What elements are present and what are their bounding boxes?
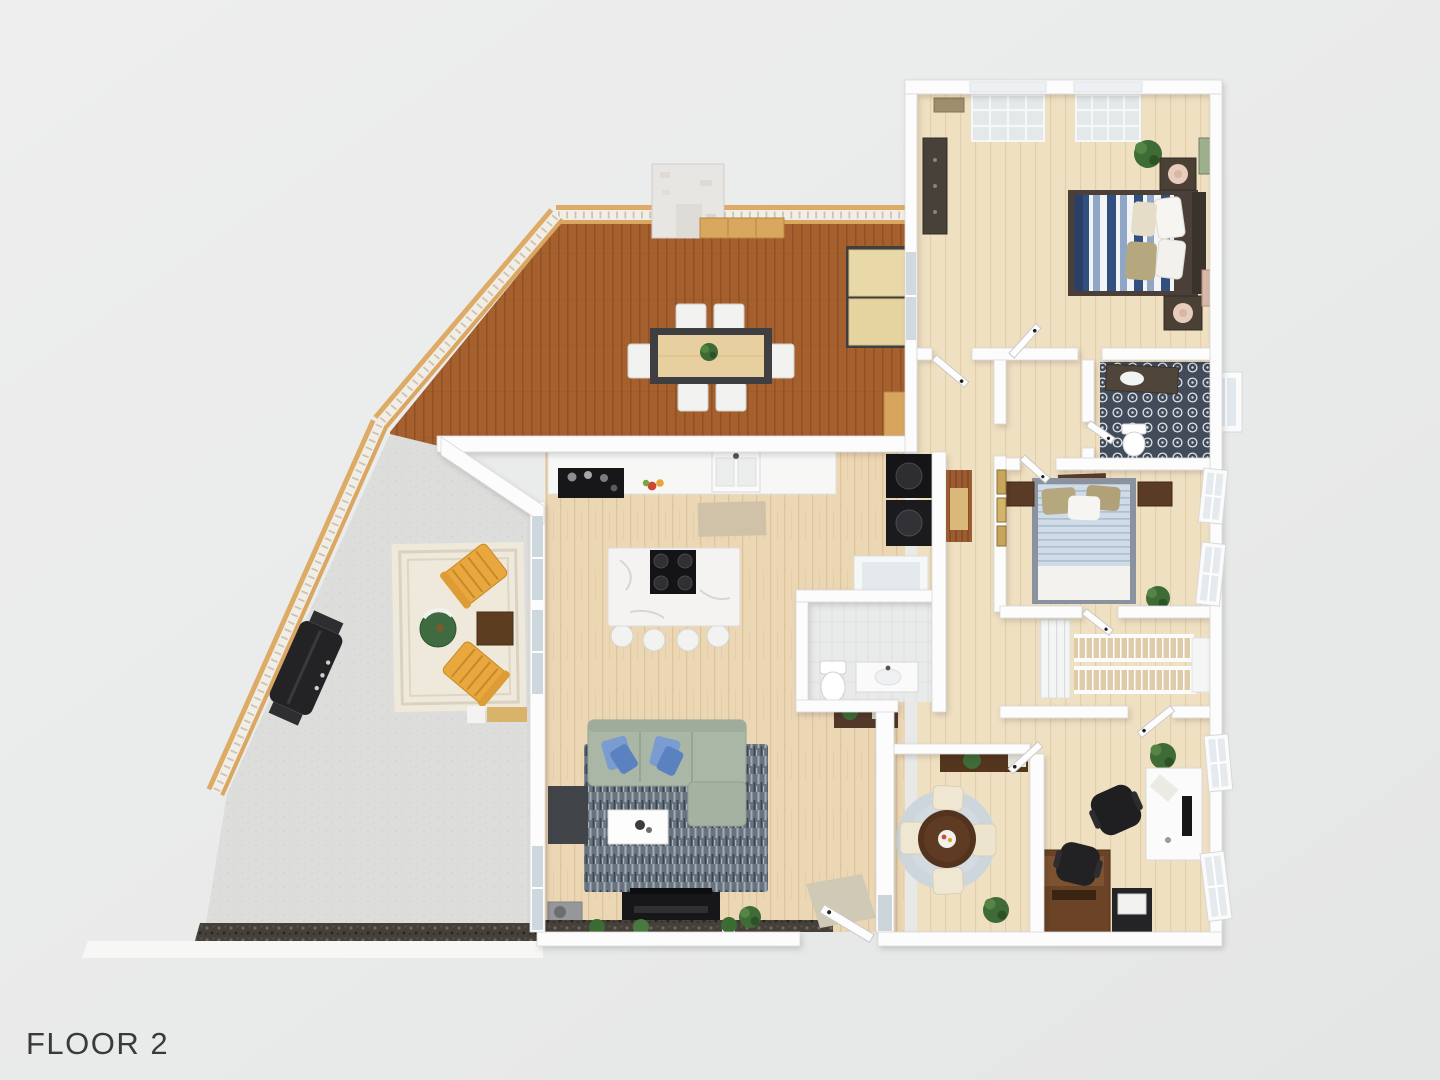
wall-art: [934, 98, 964, 112]
nightstand: [1160, 158, 1196, 190]
floorplan-render: FLOOR 2: [0, 0, 1440, 1080]
wall-east-top: [905, 80, 1222, 94]
bed-pillow: [1153, 196, 1185, 239]
wall-bottom-west: [537, 932, 800, 946]
nightstand: [1138, 482, 1172, 506]
stove: [558, 468, 624, 498]
patio-mat: [487, 707, 527, 722]
window-frame: [1074, 82, 1142, 92]
plant: [1134, 140, 1162, 168]
nook-chair: [932, 785, 963, 811]
plant: [1150, 743, 1176, 769]
stool: [677, 629, 699, 651]
washer-dryer: [886, 454, 932, 546]
bed-pillow: [1068, 495, 1101, 520]
floorplan-canvas: [0, 0, 1440, 1080]
wall-bottom-east: [878, 932, 1222, 946]
deck-daybed: [846, 246, 908, 348]
fireplace: [946, 470, 972, 542]
deck-bench: [700, 218, 784, 238]
dining-chair: [678, 383, 708, 411]
bed2: [1032, 478, 1136, 604]
bed-pillow: [1155, 239, 1186, 280]
hearth-strip: [543, 920, 833, 932]
dining-chair: [716, 383, 746, 411]
floor-plant: [739, 906, 761, 928]
nightstand: [1002, 482, 1034, 506]
wood-side-table: [477, 612, 513, 645]
master-bed: [1068, 190, 1206, 296]
dining-chair: [770, 344, 794, 378]
dark-vanity: [1105, 364, 1178, 394]
wall-main-top: [437, 436, 917, 452]
green-side-table: [420, 610, 456, 647]
gravel-bed: [194, 923, 543, 944]
dining-chair: [714, 304, 744, 330]
entry-glass: [878, 895, 892, 931]
nook-chair: [932, 867, 963, 895]
kitchen-sink: [712, 452, 760, 492]
patio-edge: [82, 941, 543, 958]
dining-chair: [628, 344, 652, 378]
bath-vanity: [856, 662, 918, 692]
toilet: [820, 661, 846, 702]
hearth-plant: [721, 917, 737, 933]
deck-floor: [390, 220, 905, 464]
bed-pillow: [1131, 201, 1158, 237]
round-table: [918, 810, 976, 868]
patio-mat-white: [467, 706, 485, 723]
patio-area: [82, 434, 543, 958]
bed-pillow: [1125, 241, 1158, 281]
stool: [611, 625, 633, 647]
linen-closet: [1040, 620, 1070, 698]
white-desk: [1146, 768, 1202, 860]
coffee-table: [608, 810, 668, 844]
toilet: [1122, 424, 1146, 456]
stool: [643, 629, 665, 651]
nightstand: [1164, 296, 1202, 330]
kitchen-rug: [698, 501, 767, 537]
dining-chair: [676, 304, 706, 330]
side-chair: [548, 786, 588, 844]
wall-art: [1199, 138, 1211, 174]
plant: [983, 897, 1009, 923]
window-frame: [970, 82, 1046, 92]
stool: [707, 625, 729, 647]
printer-cart: [1112, 888, 1152, 932]
table-plant: [700, 343, 718, 361]
floor-label: FLOOR 2: [26, 1026, 169, 1062]
mirror-art: [997, 470, 1006, 546]
cooktop: [650, 550, 696, 594]
